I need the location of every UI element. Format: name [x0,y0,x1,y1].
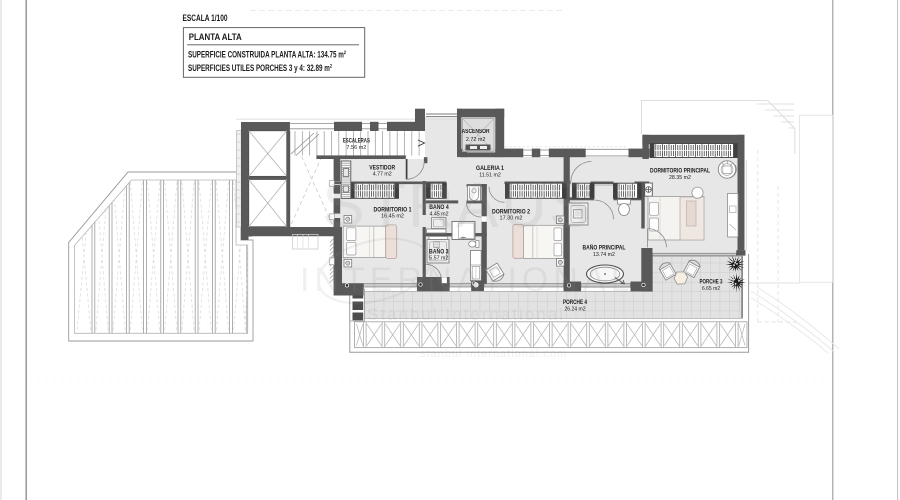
svg-text:6.65 m2: 6.65 m2 [702,286,720,292]
svg-text:SUPERFICIE CONSTRUIDA PLANTA A: SUPERFICIE CONSTRUIDA PLANTA ALTA: 134.7… [188,49,346,59]
svg-text:SUPERFICIES UTILES PORCHES 3 y: SUPERFICIES UTILES PORCHES 3 y 4: 32.89 … [188,63,332,73]
svg-text:ESCALA 1/100: ESCALA 1/100 [183,12,228,23]
svg-text:26.24 m2: 26.24 m2 [565,307,586,313]
svg-text:ESCALERAS: ESCALERAS [343,139,370,145]
svg-text:ASCENSOR: ASCENSOR [462,129,491,135]
svg-text:PORCHE 4: PORCHE 4 [563,300,588,306]
svg-text:2.72 m2: 2.72 m2 [466,137,486,143]
svg-text:DORMITORIO PRINCIPAL: DORMITORIO PRINCIPAL [650,168,710,174]
svg-text:BAÑO 3: BAÑO 3 [429,248,449,255]
svg-text:stanbul international.com: stanbul international.com [420,348,567,360]
svg-text:STRAUS: STRAUS [322,169,594,241]
svg-text:PORCHE 3: PORCHE 3 [700,280,723,286]
svg-text:13.74 m2: 13.74 m2 [593,252,615,258]
svg-text:PLANTA ALTA: PLANTA ALTA [189,31,242,42]
svg-text:28.35 m2: 28.35 m2 [669,175,691,181]
svg-text:INTERNATIONAL: INTERNATIONAL [300,261,635,299]
svg-text:BAÑO PRINCIPAL: BAÑO PRINCIPAL [583,244,626,251]
svg-text:7.56 m2: 7.56 m2 [346,145,366,151]
svg-text:Stanbul International: Stanbul International [367,305,565,324]
